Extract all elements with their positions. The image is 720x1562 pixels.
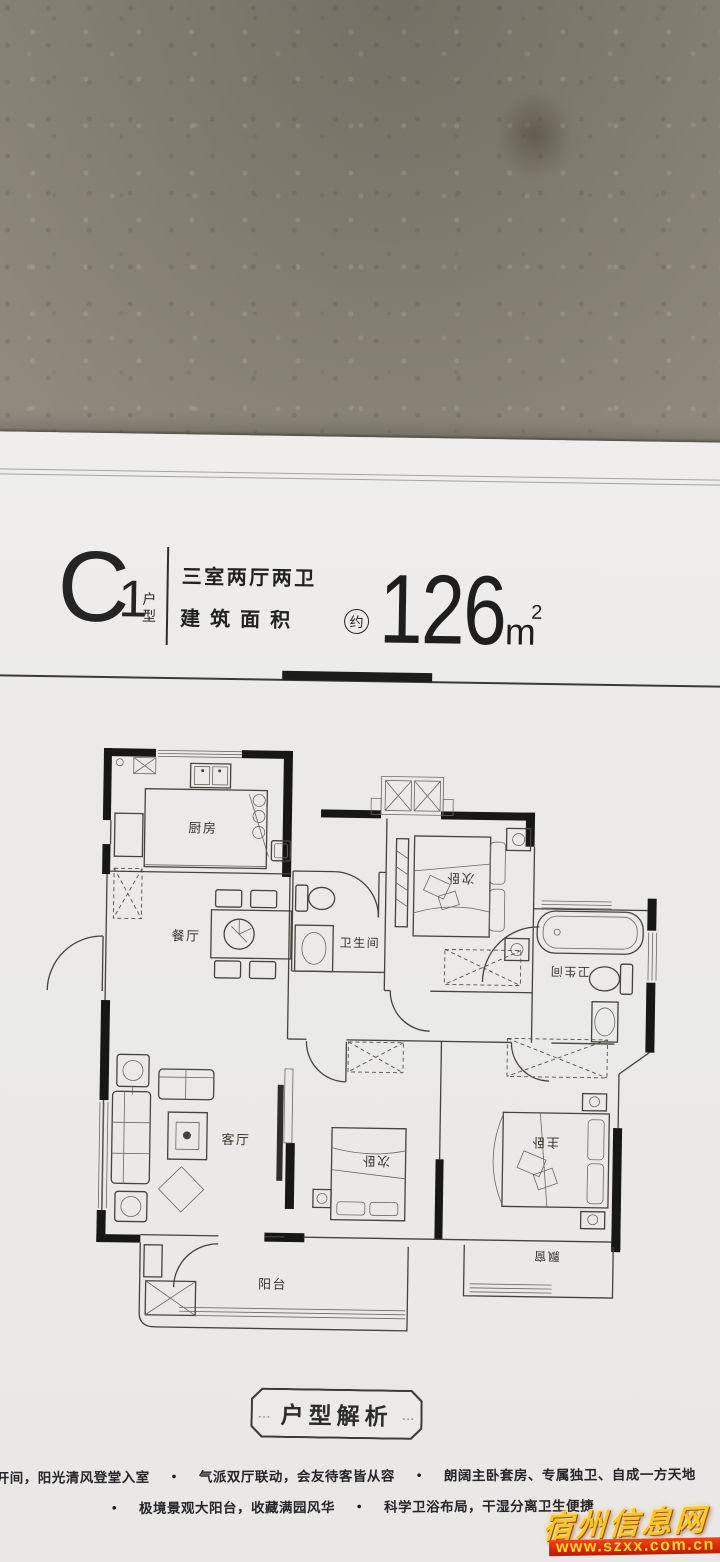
selling-points-row-1: 向三开间，阳光清风登堂入室 • 气派双厅联动，会友待客皆从容 • 朗阔主卧套房、… (0, 1463, 696, 1487)
thin-walls (101, 814, 653, 1243)
selling-points-row-2: • 极境景观大阳台，收藏满园风华 • 科学卫浴布局，干湿分离卫生便捷 (112, 1495, 594, 1518)
label-balcony: 阳台 (258, 1277, 287, 1292)
watermark-url-bar: www.szxx.com.cn (549, 1536, 720, 1557)
area-value: 126 (378, 559, 506, 659)
label-bedroom-bottom: 次卧 (361, 1153, 390, 1168)
tag-dots-left: … (257, 1405, 271, 1420)
label-bathroom-ensuite: 卫生间 (549, 964, 590, 979)
windows (98, 750, 659, 1217)
header-vertical-divider (166, 547, 170, 645)
bullet-icon: • (357, 1498, 362, 1513)
area-caption: 建筑面积 (180, 602, 300, 633)
watermark-site-url: www.szxx.com.cn (549, 1537, 715, 1556)
bedroom-bottom-furniture (304, 1041, 408, 1221)
bathroom-main-fixtures (295, 871, 380, 972)
entry-door (47, 867, 142, 991)
thick-walls (96, 748, 659, 1253)
floorplan-svg: 厨房 餐厅 卫生间 次卧 卫生间 客厅 次卧 主卧 阳台 飘窗 (66, 736, 661, 1380)
section-tag-inner: … 户型解析 … (252, 1389, 421, 1438)
dining-furniture (210, 890, 291, 979)
bedroom-master-furniture (492, 1038, 610, 1229)
bullet-icon: • (417, 1467, 422, 1482)
label-living-room: 客厅 (221, 1132, 250, 1147)
selling-point: 朗阔主卧套房、专属独卫、自成一方天地 (444, 1463, 696, 1484)
section-tag-box: … 户型解析 … (250, 1387, 423, 1440)
label-bedroom-master: 主卧 (530, 1135, 559, 1150)
label-dining: 餐厅 (171, 928, 200, 943)
floorplan-drawing: 厨房 餐厅 卫生间 次卧 卫生间 客厅 次卧 主卧 阳台 飘窗 (66, 736, 661, 1385)
photo-of-floorplan-poster: C 1 户型 三室两厅两卫 建筑面积 约 126 m 2 (0, 0, 720, 1562)
kitchen-fixtures (114, 757, 292, 869)
label-kitchen: 厨房 (188, 820, 217, 835)
bedroom-top-furniture (390, 827, 531, 1033)
floorplan-poster: C 1 户型 三室两厅两卫 建筑面积 约 126 m 2 (0, 431, 720, 1562)
bullet-icon: • (112, 1500, 117, 1515)
label-bay-window: 飘窗 (532, 1249, 559, 1263)
bullet-icon: • (172, 1468, 177, 1483)
label-bathroom-main: 卫生间 (340, 936, 381, 951)
living-room-furniture (111, 1054, 294, 1224)
area-exponent: 2 (531, 602, 542, 625)
section-tag-label: 户型解析 (280, 1396, 393, 1432)
tag-dots-right: … (401, 1407, 415, 1422)
approx-circle-badge: 约 (344, 609, 369, 634)
wall-dark-blemish (495, 90, 575, 180)
selling-point: 气派双厅联动，会友待客皆从容 (199, 1465, 395, 1486)
selling-points: 向三开间，阳光清风登堂入室 • 气派双厅联动，会友待客皆从容 • 朗阔主卧套房、… (0, 1463, 720, 1467)
room-spec-line: 三室两厅两卫 (182, 560, 317, 591)
selling-point: 极境景观大阳台，收藏满园风华 (139, 1496, 335, 1517)
selling-point: 向三开间，阳光清风登堂入室 (0, 1466, 150, 1487)
bedroom-top-window-bump (371, 776, 454, 815)
unit-type-caption: 户型 (139, 592, 160, 626)
label-bedroom-top: 次卧 (445, 870, 474, 885)
